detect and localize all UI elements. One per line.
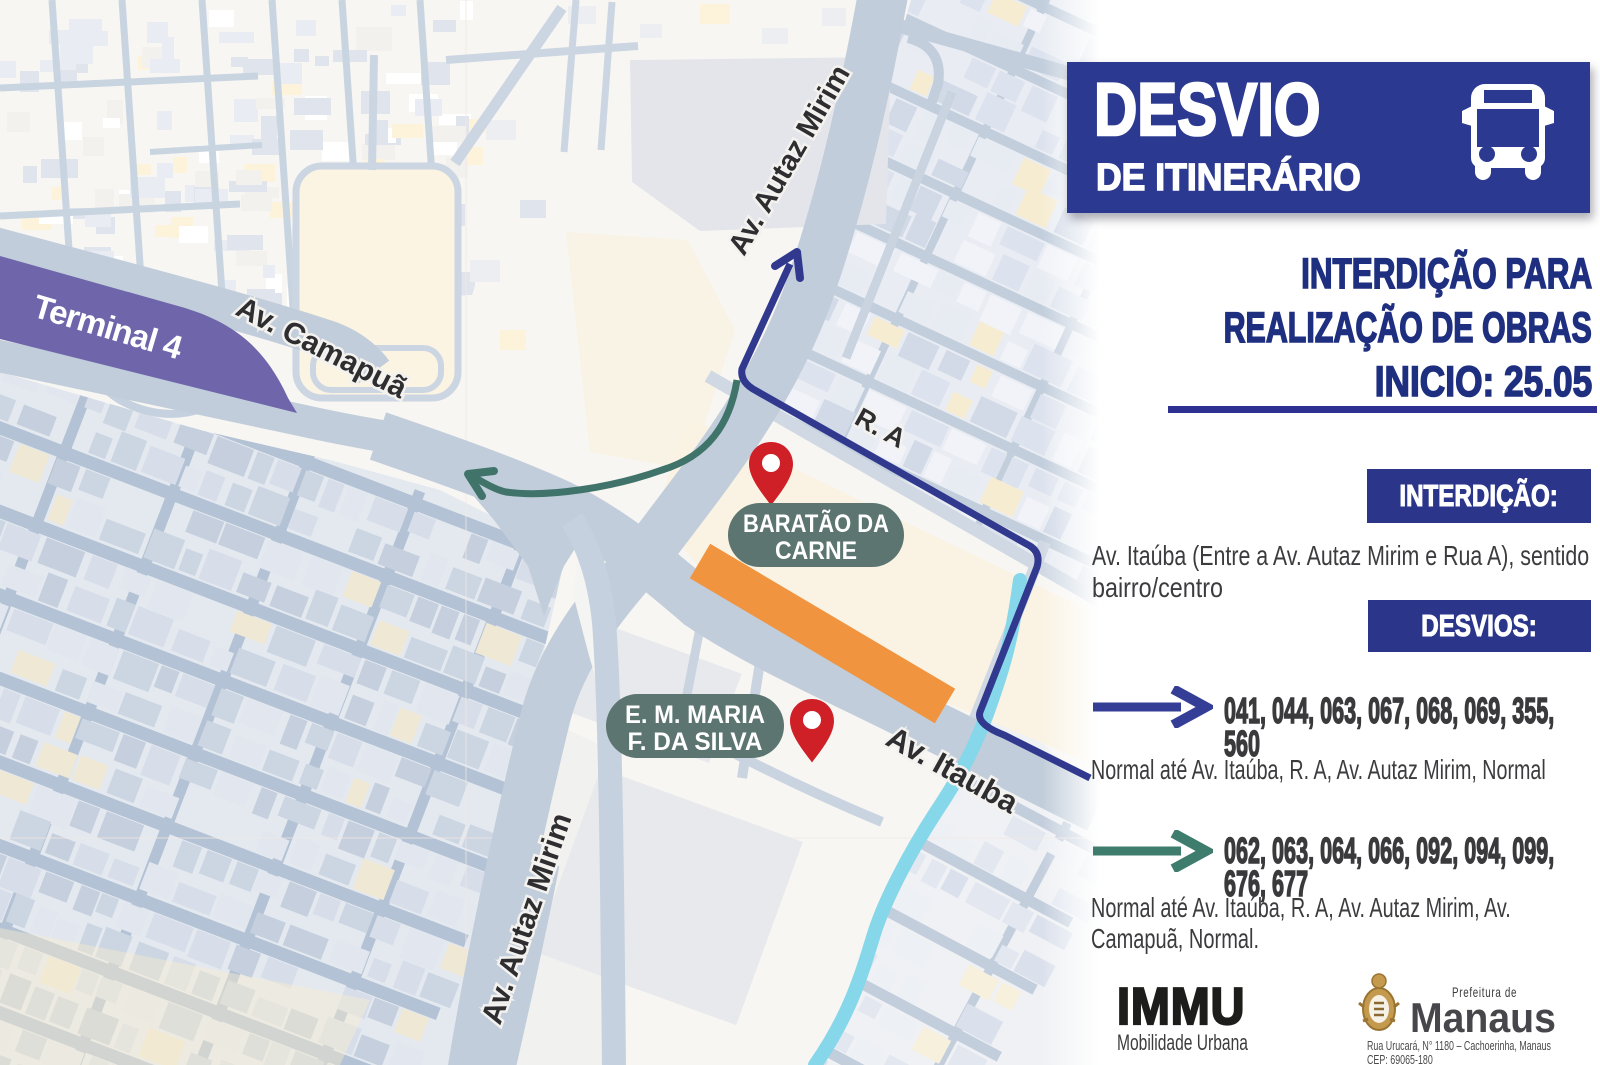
- svg-text:CARNE: CARNE: [775, 537, 857, 565]
- svg-text:F. DA SILVA: F. DA SILVA: [628, 728, 763, 756]
- svg-text:BARATÃO DA: BARATÃO DA: [743, 508, 889, 538]
- svg-text:E. M. MARIA: E. M. MARIA: [625, 701, 765, 729]
